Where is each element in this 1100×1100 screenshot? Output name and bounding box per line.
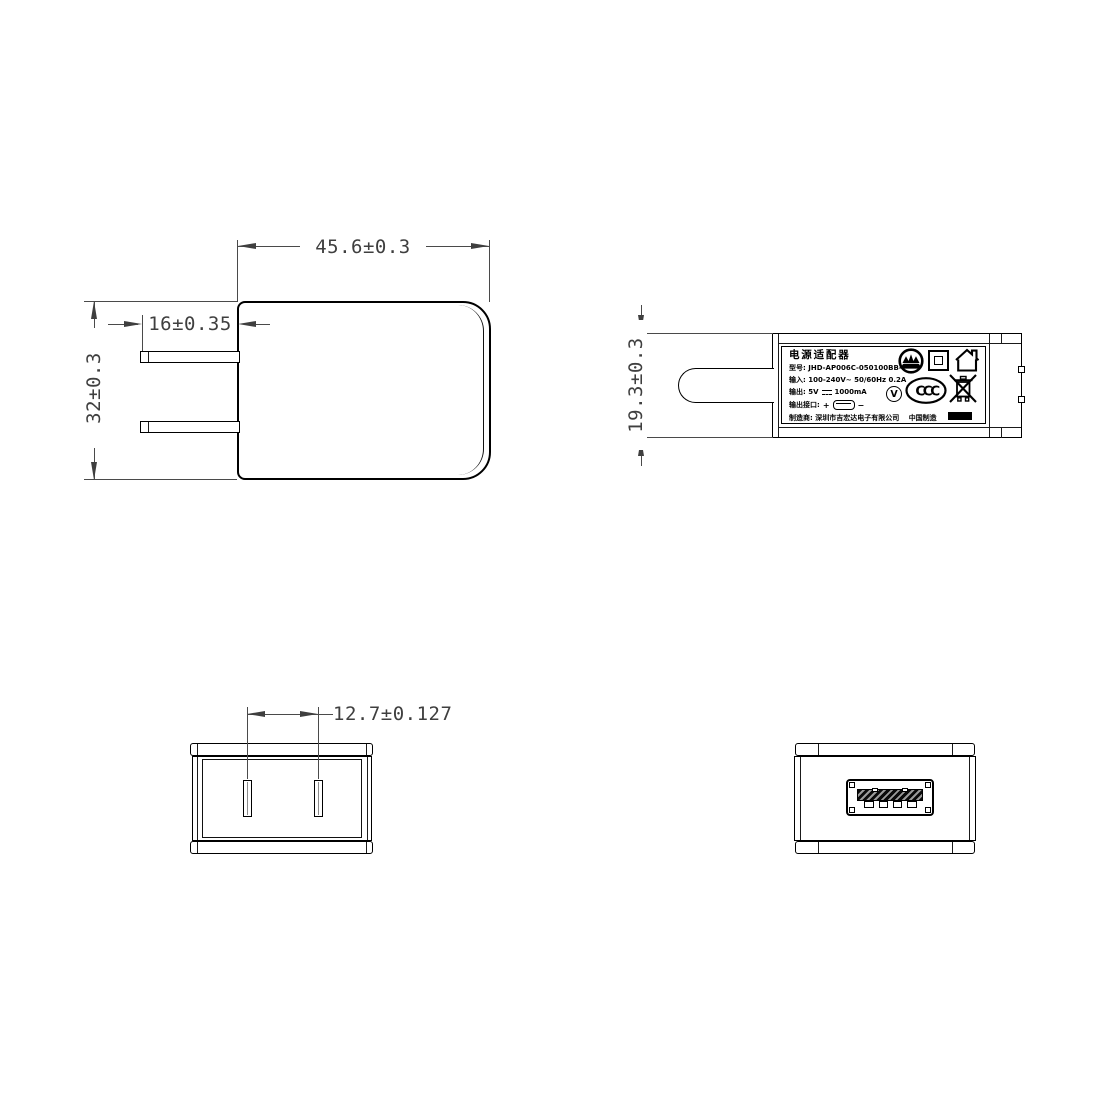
extension-line bbox=[142, 315, 143, 351]
label-manufacturer: 制造商: 深圳市吉宏达电子有限公司 中国制造 bbox=[789, 414, 937, 423]
efficiency-level-v-icon: V bbox=[886, 386, 902, 402]
prong-tip-line bbox=[148, 422, 149, 432]
plug-prong-lower bbox=[140, 421, 240, 433]
arrowhead bbox=[91, 301, 97, 319]
arrowhead bbox=[238, 243, 256, 249]
case-edge-line bbox=[989, 334, 990, 437]
extension-line bbox=[632, 437, 773, 438]
face-inset-outline bbox=[202, 759, 362, 838]
label-output-text: 输出: 5V bbox=[789, 388, 819, 397]
arrowhead bbox=[91, 462, 97, 480]
adapter-body-edge-line bbox=[240, 305, 484, 475]
dimension-prong-length: 16±0.35 bbox=[144, 313, 236, 335]
plug-prong-upper bbox=[140, 351, 240, 363]
label-output-current: 1000mA bbox=[835, 388, 867, 397]
cap-seam-line bbox=[197, 842, 198, 853]
case-edge-line bbox=[197, 757, 198, 840]
case-seam-line bbox=[778, 427, 1021, 428]
usb-opening-notch bbox=[1018, 396, 1025, 403]
cap-seam-line bbox=[1001, 428, 1002, 438]
prong-slot-detail-line bbox=[318, 782, 319, 815]
prong-tip-line bbox=[148, 352, 149, 362]
extension-line bbox=[84, 479, 237, 480]
extension-line bbox=[84, 301, 237, 302]
svg-text:CCC: CCC bbox=[915, 383, 940, 399]
end-cap-outline bbox=[190, 841, 373, 854]
weee-bar-icon bbox=[948, 412, 972, 420]
plug-prong-side-profile bbox=[678, 368, 774, 403]
arrowhead bbox=[238, 321, 256, 327]
cap-seam-line bbox=[818, 842, 819, 853]
usb-opening-notch bbox=[1018, 366, 1025, 373]
arrowhead bbox=[247, 711, 265, 717]
arrowhead bbox=[300, 711, 318, 717]
case-edge-line bbox=[969, 757, 970, 840]
label-port-text: 输出接口: bbox=[789, 401, 820, 410]
extension-line bbox=[318, 707, 319, 779]
dc-voltage-icon bbox=[822, 390, 832, 396]
usb-corner-notch bbox=[849, 807, 855, 813]
dimension-body-height: 32±0.3 bbox=[83, 328, 105, 448]
arrowhead bbox=[124, 321, 142, 327]
polarity-minus: − bbox=[858, 401, 865, 410]
end-cap-outline bbox=[795, 743, 975, 756]
extension-line bbox=[489, 240, 490, 302]
usb-tongue-notch bbox=[902, 788, 908, 792]
cap-seam-line bbox=[197, 744, 198, 755]
label-title: 电源适配器 bbox=[789, 349, 851, 362]
cap-seam-line bbox=[1001, 334, 1002, 344]
usb-corner-notch bbox=[925, 807, 931, 813]
extension-line bbox=[247, 707, 248, 779]
class-ii-double-insulation-icon bbox=[928, 350, 949, 371]
end-cap-outline bbox=[190, 743, 373, 756]
dimension-prong-spacing: 12.7±0.127 bbox=[333, 703, 452, 725]
drawing-canvas: 45.6±0.3 16±0.35 32±0.3 19.3±0 bbox=[0, 0, 1100, 1100]
prong-slot-detail-line bbox=[247, 782, 248, 815]
arrowhead bbox=[471, 243, 489, 249]
dimension-body-width: 45.6±0.3 bbox=[300, 236, 426, 258]
usb-contact-pin bbox=[879, 801, 888, 808]
usb-contact-pin bbox=[864, 801, 874, 808]
polarity-plus: + bbox=[823, 401, 830, 410]
label-output: 输出: 5V 1000mA bbox=[789, 388, 867, 397]
usb-corner-notch bbox=[925, 782, 931, 788]
indoor-use-only-house-icon bbox=[953, 346, 981, 374]
extension-line bbox=[632, 333, 773, 334]
usb-tongue bbox=[857, 789, 923, 801]
extension-line bbox=[237, 240, 238, 302]
label-made-in: 中国制造 bbox=[909, 414, 937, 422]
case-seam-line bbox=[778, 343, 1021, 344]
weee-crossed-bin-icon bbox=[948, 372, 978, 406]
cap-seam-line bbox=[366, 842, 367, 853]
cap-seam-line bbox=[952, 842, 953, 853]
dimension-leader bbox=[256, 324, 270, 325]
case-edge-line bbox=[800, 757, 801, 840]
cap-seam-line bbox=[952, 744, 953, 755]
usb-contact-pin bbox=[907, 801, 917, 808]
case-edge-line bbox=[367, 757, 368, 840]
cap-seam-line bbox=[366, 744, 367, 755]
cap-seam-line bbox=[818, 744, 819, 755]
usb-tongue-notch bbox=[872, 788, 878, 792]
case-edge-line bbox=[778, 334, 779, 437]
label-port: 输出接口: + − bbox=[789, 400, 864, 410]
usb-contact-pin bbox=[893, 801, 902, 808]
ccc-mark-icon: CCC bbox=[905, 377, 947, 404]
end-cap-outline bbox=[795, 841, 975, 854]
dimension-body-depth: 19.3±0.3 bbox=[625, 320, 647, 450]
label-input: 输入: 100-240V~ 50/60Hz 0.2A bbox=[789, 376, 906, 385]
usb-connector-icon bbox=[833, 400, 855, 410]
certification-crown-circle-icon bbox=[898, 348, 924, 374]
label-model: 型号: JHD-AP006C-050100BB-2 bbox=[789, 364, 907, 373]
usb-corner-notch bbox=[849, 782, 855, 788]
